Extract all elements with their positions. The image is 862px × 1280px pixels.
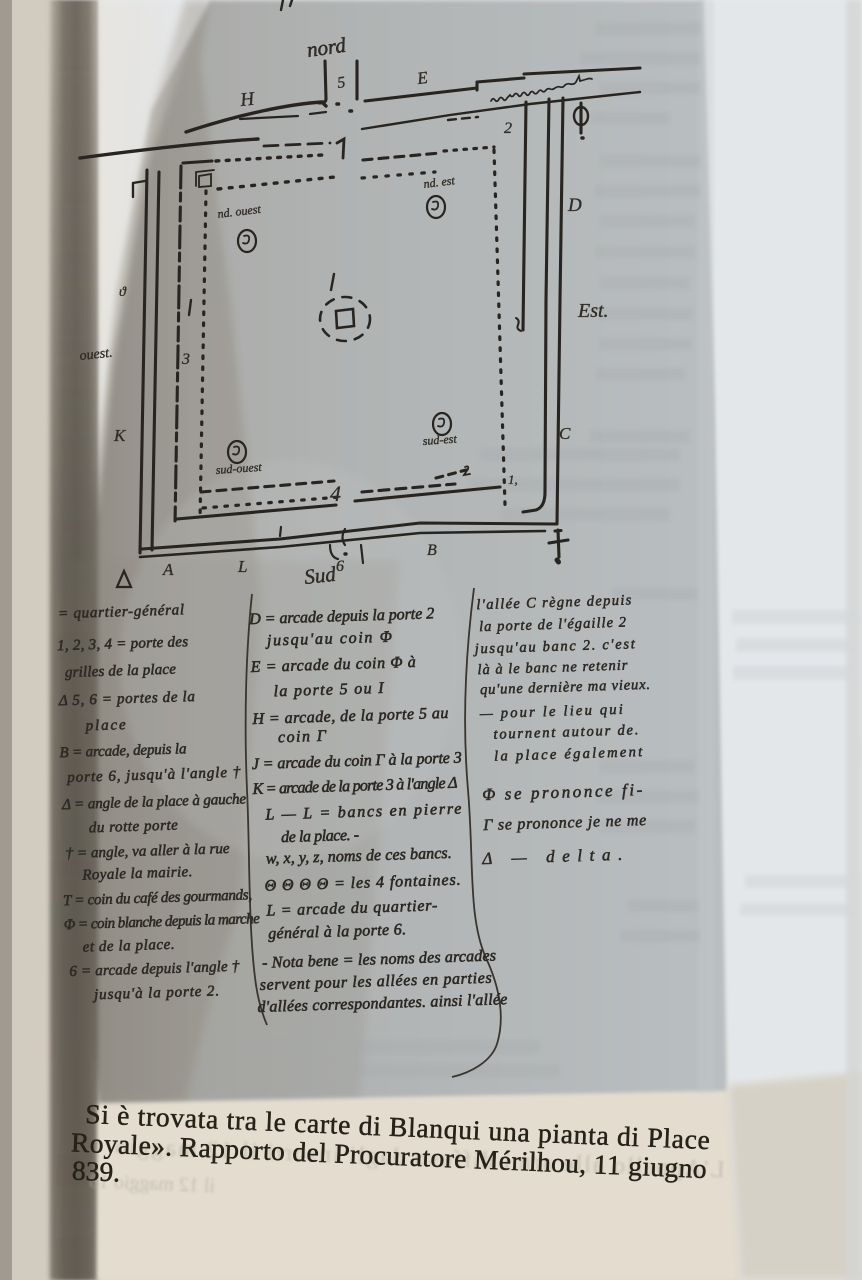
svg-text:D: D [567,195,582,216]
svg-text:839.: 839. [71,1155,120,1188]
svg-text:ϑ: ϑ [119,285,127,300]
svg-text:la porte 5 ou I: la porte 5 ou I [273,680,384,700]
svg-text:C: C [559,424,571,443]
svg-text:6: 6 [336,558,344,575]
svg-text:et de la place.: et de la place. [82,937,174,956]
svg-text:du rotte porte: du rotte porte [89,818,179,837]
svg-text:B: B [427,542,437,559]
svg-text:3: 3 [181,351,190,368]
svg-text:Est.: Est. [577,300,609,322]
svg-text:4: 4 [330,481,341,506]
svg-text:Sud: Sud [303,562,337,589]
svg-text:place: place [84,717,126,734]
svg-text:K: K [113,426,127,445]
svg-text:L: L [237,557,247,576]
svg-text:de la place. -: de la place. - [281,827,359,846]
svg-text:sud-est: sud-est [422,432,458,448]
svg-text:2: 2 [504,120,512,137]
svg-text:A: A [162,560,174,579]
svg-text:1,: 1, [508,472,518,487]
